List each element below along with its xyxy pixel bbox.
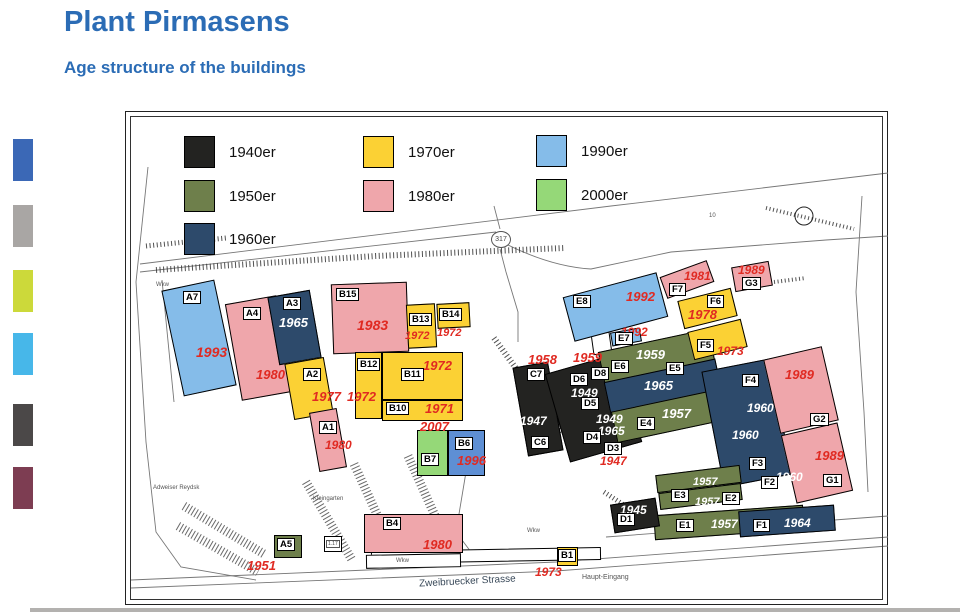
sidebar-swatch-yellow-green (13, 270, 33, 312)
year-label-1957: 1957 (662, 406, 691, 421)
building-label-E1: E1 (676, 519, 694, 532)
sidebar-swatch-dark-gray (13, 404, 33, 446)
building-label-A2: A2 (303, 368, 321, 381)
building-label-F7: F7 (669, 283, 686, 296)
year-label-1965: 1965 (598, 424, 625, 438)
building-label-F3: F3 (749, 457, 766, 470)
sidebar-swatch-maroon (13, 467, 33, 509)
building-label-B7: B7 (421, 453, 439, 466)
legend-swatch-1980er (363, 180, 394, 212)
legend-label-1940er: 1940er (229, 144, 276, 161)
year-label-1989: 1989 (815, 448, 844, 463)
area-label-wkw: Wkw (156, 282, 169, 288)
sidebar-swatch-blue (13, 139, 33, 181)
year-label-1992: 1992 (626, 289, 655, 304)
year-label-1978: 1978 (688, 307, 717, 322)
year-label-1947: 1947 (600, 454, 627, 468)
building-label-E3: E3 (671, 489, 689, 502)
year-label-1960: 1960 (732, 428, 759, 442)
building-label-C6: C6 (531, 436, 549, 449)
year-label-1980: 1980 (325, 438, 352, 452)
year-label-2007: 2007 (420, 419, 449, 434)
legend-swatch-1940er (184, 136, 215, 168)
year-label-1957: 1957 (695, 496, 719, 508)
year-label-1980: 1980 (256, 367, 285, 382)
year-label-1964: 1964 (784, 516, 811, 530)
legend-label-1980er: 1980er (408, 188, 455, 205)
legend-label-2000er: 2000er (581, 187, 628, 204)
area-label-kleingarten: Kleingarten (313, 496, 343, 502)
building-label-G3: G3 (742, 277, 761, 290)
year-label-1959: 1959 (636, 347, 665, 362)
area-label-317: 317 (491, 231, 511, 248)
year-label-1989: 1989 (738, 263, 765, 277)
map-canvas: A7A4A3A2A1A5B15B13B14B12B11B10B7B6B4B1C7… (126, 112, 889, 606)
legend-swatch-1950er (184, 180, 215, 212)
year-label-1981: 1981 (684, 269, 711, 283)
year-label-1972: 1972 (405, 330, 429, 342)
building-label-D3: D3 (604, 442, 622, 455)
area-label-adweiser-reydsk: Adweiser Reydsk (153, 485, 199, 491)
building-label-F6: F6 (707, 295, 724, 308)
legend-swatch-2000er (536, 179, 567, 211)
year-label-1972: 1972 (423, 358, 452, 373)
year-label-1959: 1959 (573, 350, 602, 365)
building-label-A1: A1 (319, 421, 337, 434)
building-label-A3: A3 (283, 297, 301, 310)
building-label-B6: B6 (455, 437, 473, 450)
building-label-B10: B10 (386, 402, 409, 415)
building-label-E6: E6 (611, 360, 629, 373)
legend-swatch-1990er (536, 135, 567, 167)
building-label-C7: C7 (527, 368, 545, 381)
building-label-B11: B11 (401, 368, 424, 381)
legend-label-1990er: 1990er (581, 143, 628, 160)
building-label-D6: D6 (570, 373, 588, 386)
slide-page: Plant Pirmasens Age structure of the bui… (0, 0, 960, 614)
building-label-E4: E4 (637, 417, 655, 430)
sidebar-swatch-cyan (13, 333, 33, 375)
legend-swatch-1970er (363, 136, 394, 168)
area-label-zweibruecker-strasse: Zweibruecker Strasse (419, 573, 516, 589)
year-label-1989: 1989 (785, 367, 814, 382)
year-label-1973: 1973 (717, 344, 744, 358)
building-label-B12: B12 (357, 358, 380, 371)
building-label-B4: B4 (383, 517, 401, 530)
year-label-1960: 1960 (747, 401, 774, 415)
building-label-F2: F2 (761, 476, 778, 489)
page-subtitle: Age structure of the buildings (64, 58, 306, 78)
year-label-1996: 1996 (457, 453, 486, 468)
year-label-1971: 1971 (425, 401, 454, 416)
building-label-A4: A4 (243, 307, 261, 320)
year-label-1951: 1951 (247, 558, 276, 573)
building-label-G1: G1 (823, 474, 842, 487)
year-label-1965: 1965 (644, 378, 673, 393)
building-label-A7: A7 (183, 291, 201, 304)
year-label-1957: 1957 (693, 476, 717, 488)
building-label-B14: B14 (439, 308, 462, 321)
building-shape-shed-row-2 (366, 553, 461, 569)
area-label-wkw: Wkw (396, 558, 409, 564)
area-label-haupt-eingang: Haupt-Eingang (582, 574, 629, 581)
legend-swatch-1960er (184, 223, 215, 255)
building-label-E8: E8 (573, 295, 591, 308)
building-label-B1: B1 (558, 549, 576, 562)
area-label-10: 10 (709, 213, 716, 219)
year-label-1947: 1947 (520, 414, 547, 428)
building-label-A5: A5 (277, 538, 295, 551)
area-label-wkw: Wkw (527, 528, 540, 534)
year-label-1973: 1973 (535, 565, 562, 579)
year-label-1993: 1993 (196, 344, 227, 360)
year-label-1983: 1983 (357, 317, 388, 333)
building-label-E5: E5 (666, 362, 684, 375)
year-label-1972: 1972 (437, 327, 461, 339)
building-label-D5: D5 (581, 397, 599, 410)
year-label-1958: 1958 (528, 352, 557, 367)
building-label-E7: E7 (615, 332, 633, 345)
building-label-F1: F1 (753, 519, 770, 532)
building-label-D4: D4 (583, 431, 601, 444)
year-label-1960: 1960 (776, 470, 803, 484)
sidebar-swatch-gray (13, 205, 33, 247)
building-label-D8: D8 (591, 367, 609, 380)
building-label-E2: E2 (722, 492, 740, 505)
year-label-1980: 1980 (423, 537, 452, 552)
page-title: Plant Pirmasens (64, 6, 290, 39)
building-shape-G1 (781, 422, 853, 503)
year-label-1977: 1977 (312, 389, 341, 404)
area-label-1-17: 1.17 (326, 540, 340, 548)
site-plan-map: A7A4A3A2A1A5B15B13B14B12B11B10B7B6B4B1C7… (125, 111, 888, 605)
building-label-F4: F4 (742, 374, 759, 387)
photo-edge-strip (30, 608, 960, 612)
building-label-D1: D1 (617, 513, 635, 526)
year-label-1972: 1972 (347, 389, 376, 404)
year-label-1957: 1957 (711, 517, 738, 531)
building-label-F5: F5 (697, 339, 714, 352)
building-label-B15: B15 (336, 288, 359, 301)
building-label-B13: B13 (409, 313, 432, 326)
legend-label-1950er: 1950er (229, 188, 276, 205)
building-label-G2: G2 (810, 413, 829, 426)
legend-label-1960er: 1960er (229, 231, 276, 248)
legend-label-1970er: 1970er (408, 144, 455, 161)
year-label-1965: 1965 (279, 315, 308, 330)
